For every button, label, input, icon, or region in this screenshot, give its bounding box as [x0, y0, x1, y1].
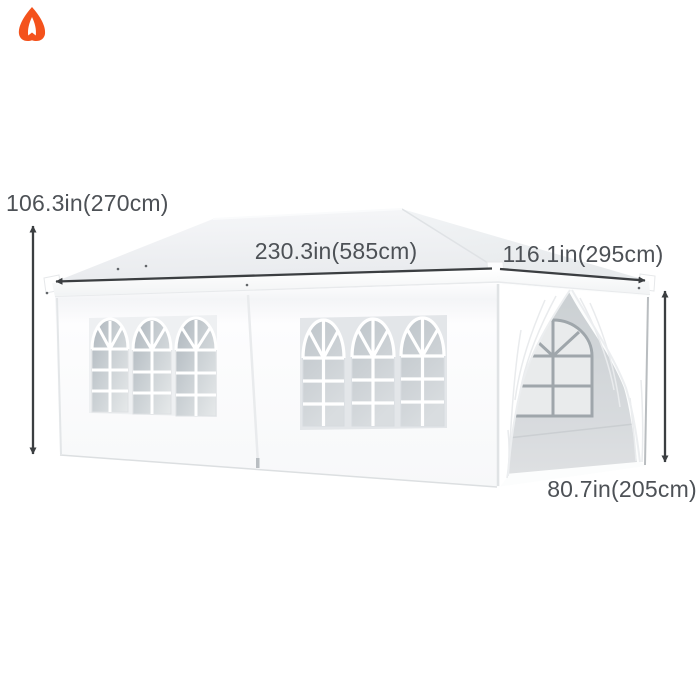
front-sidewall	[55, 283, 497, 487]
dimension-label-depth: 116.1in(295cm)	[503, 241, 664, 268]
dimension-label-side-height: 80.7in(205cm)	[547, 476, 697, 503]
arched-window	[303, 320, 344, 426]
arched-window	[133, 319, 171, 414]
arched-window	[352, 319, 394, 426]
dimension-label-height: 106.3in(270cm)	[6, 190, 169, 217]
zipper-pull	[256, 458, 260, 468]
window-panel-near	[300, 315, 447, 430]
product-dimension-diagram: 106.3in(270cm) 230.3in(585cm) 116.1in(29…	[0, 0, 700, 700]
arched-window	[176, 318, 216, 416]
end-wall-doorway	[497, 283, 650, 487]
dimension-label-length: 230.3in(585cm)	[255, 238, 418, 265]
arched-window	[401, 318, 444, 426]
gazebo-illustration	[0, 0, 700, 700]
arched-window	[92, 319, 128, 412]
window-panel-far	[89, 315, 217, 417]
